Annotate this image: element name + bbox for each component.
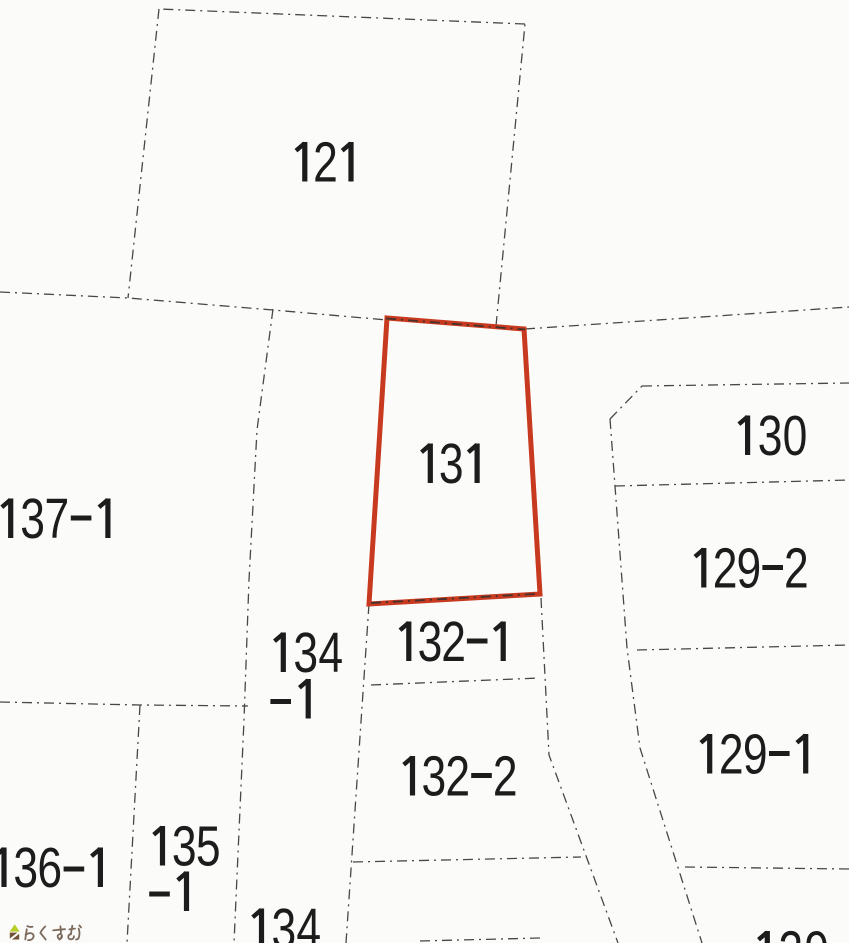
svg-text:4: 4 [296,897,321,943]
svg-text:2: 2 [713,536,738,600]
svg-text:2: 2 [784,536,809,600]
svg-text:3: 3 [172,814,197,878]
svg-text:3: 3 [272,897,297,943]
svg-text:9: 9 [743,722,768,786]
svg-text:6: 6 [37,836,62,900]
svg-text:2: 2 [493,744,518,808]
svg-text:2: 2 [778,919,803,943]
svg-text:5: 5 [196,814,221,878]
svg-text:3: 3 [13,836,38,900]
svg-text:9: 9 [737,536,762,600]
svg-text:2: 2 [719,722,744,786]
svg-text:3: 3 [293,621,318,685]
svg-text:9: 9 [804,919,829,943]
svg-text:4: 4 [318,621,343,685]
svg-text:2: 2 [445,744,470,808]
svg-text:3: 3 [418,610,443,674]
svg-text:0: 0 [783,404,808,468]
svg-text:3: 3 [20,487,45,551]
svg-text:3: 3 [422,744,447,808]
svg-text:7: 7 [45,487,70,551]
svg-text:3: 3 [439,432,464,496]
svg-text:2: 2 [313,130,338,194]
svg-text:3: 3 [758,404,783,468]
svg-text:2: 2 [441,610,466,674]
